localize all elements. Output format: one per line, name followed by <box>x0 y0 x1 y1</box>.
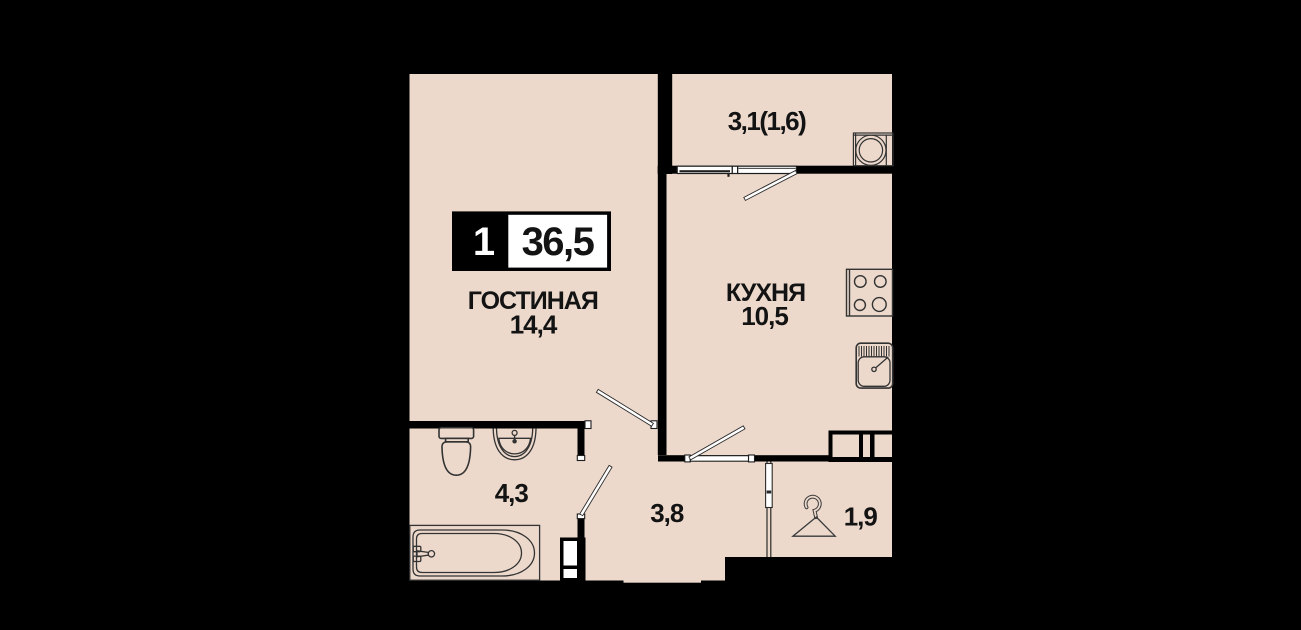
svg-text:10,5: 10,5 <box>741 301 788 331</box>
svg-text:3,1(1,6): 3,1(1,6) <box>728 106 806 136</box>
svg-text:1,9: 1,9 <box>844 501 878 531</box>
svg-text:4,3: 4,3 <box>495 478 529 508</box>
svg-text:1: 1 <box>473 220 495 264</box>
svg-text:14,4: 14,4 <box>510 309 558 339</box>
svg-text:36,5: 36,5 <box>522 220 595 264</box>
svg-text:3,8: 3,8 <box>650 498 684 528</box>
